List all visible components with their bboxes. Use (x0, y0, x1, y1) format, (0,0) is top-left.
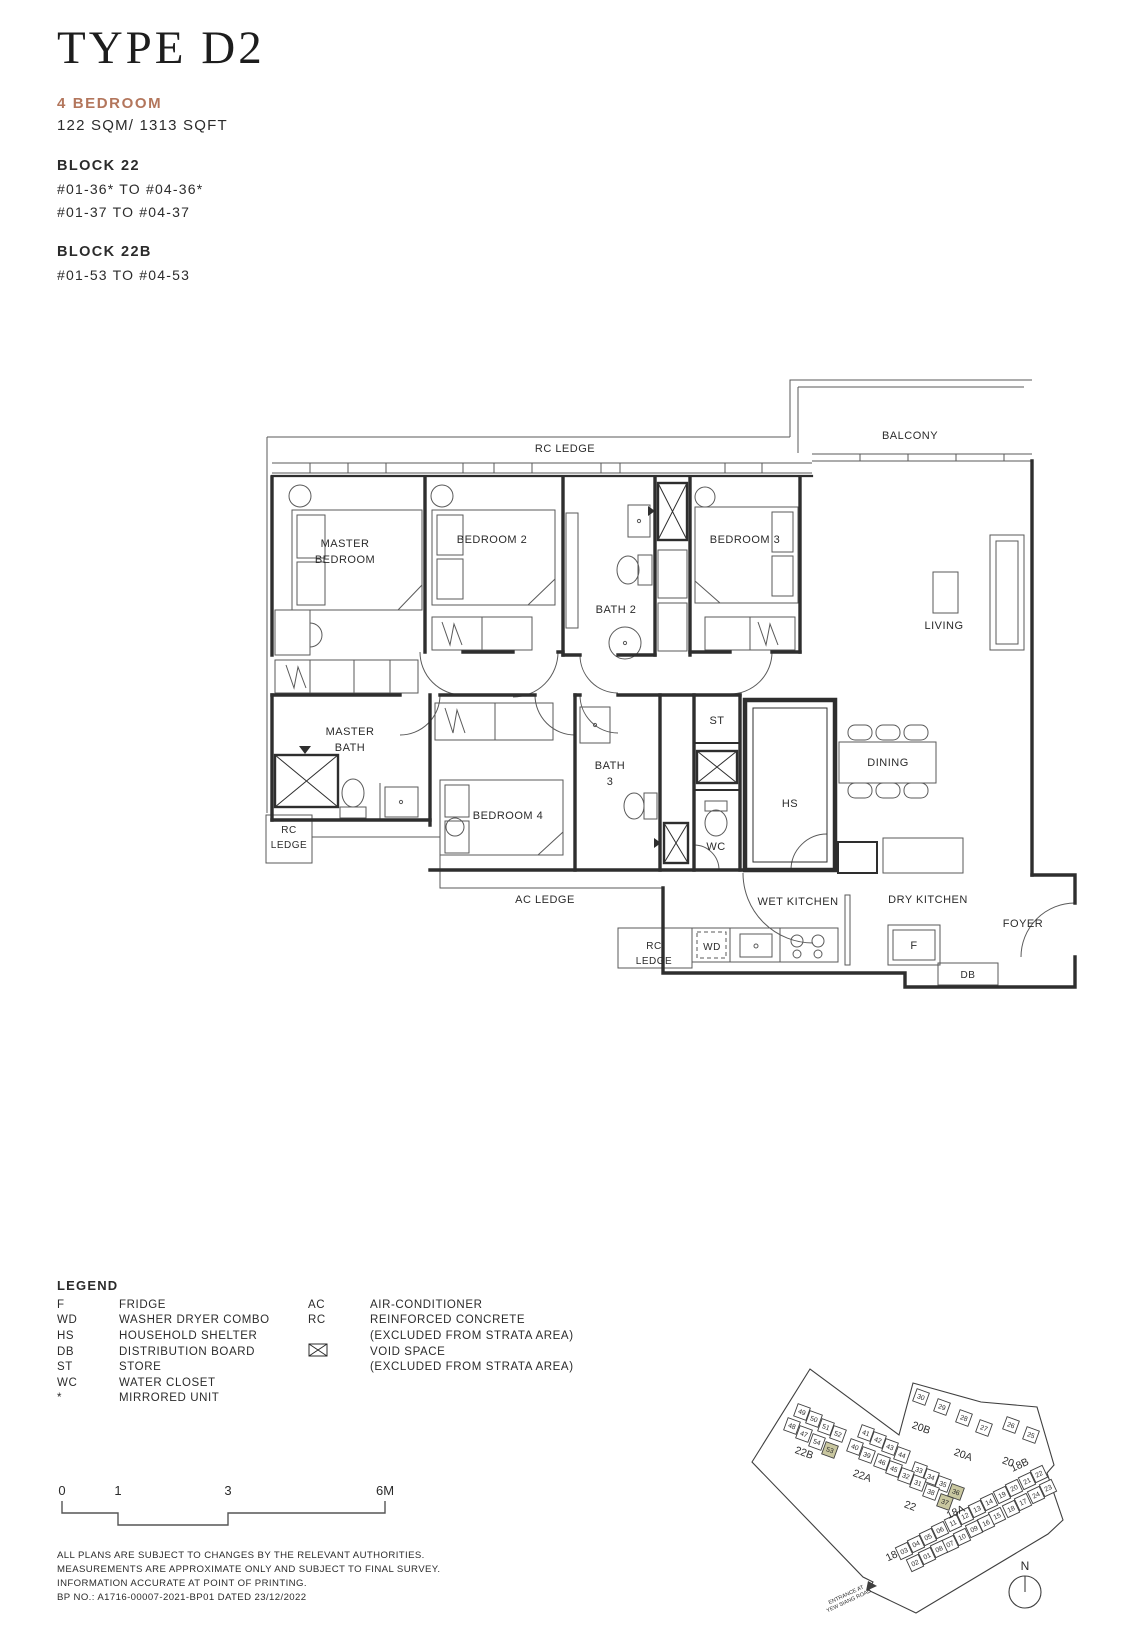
block-units-line: #01-53 TO #04-53 (57, 267, 477, 283)
room-label-wc: WC (706, 841, 725, 853)
room-label-rc-ledge: RC LEDGE (535, 443, 595, 455)
legend-abbr: HS (57, 1330, 119, 1342)
entrance-label: ENTRANCE ATYEW SIANG ROAD (826, 1584, 873, 1614)
ac-ledge-outline (312, 837, 663, 888)
site-unit-54: 54 (809, 1434, 826, 1451)
site-unit-30: 30 (913, 1389, 930, 1406)
room-label-hs: HS (782, 798, 798, 810)
legend-row: *MIRRORED UNIT (57, 1391, 307, 1407)
room-label-wd: WD (703, 942, 721, 953)
legend-label: WATER CLOSET (119, 1377, 307, 1389)
legend-abbr: ST (57, 1361, 119, 1373)
block-name: BLOCK 22B (57, 244, 477, 260)
legend-column-2: ACAIR-CONDITIONERRCREINFORCED CONCRETE(E… (308, 1297, 638, 1375)
legend-label: (EXCLUDED FROM STRATA AREA) (370, 1361, 638, 1373)
bath2-fixtures (566, 505, 652, 659)
block-units-line: #01-37 TO #04-37 (57, 204, 477, 220)
room-label-dry-kitchen: DRY KITCHEN (888, 894, 968, 906)
legend-label: HOUSEHOLD SHELTER (119, 1330, 307, 1342)
legend-row: HSHOUSEHOLD SHELTER (57, 1328, 307, 1344)
balcony-outline (798, 387, 1024, 453)
legend-label: STORE (119, 1361, 307, 1373)
legend-abbr: DB (57, 1346, 119, 1358)
disclaimer: ALL PLANS ARE SUBJECT TO CHANGES BY THE … (57, 1549, 537, 1605)
room-label-master-bedroom: MASTERBEDROOM (315, 538, 375, 566)
legend-row: WDWASHER DRYER COMBO (57, 1313, 307, 1329)
legend-row: DBDISTRIBUTION BOARD (57, 1344, 307, 1360)
site-block-label-20b: 20B (910, 1419, 932, 1437)
site-unit-28: 28 (956, 1410, 973, 1427)
scale-tick-label: 6M (376, 1483, 394, 1498)
site-block-label-22: 22 (902, 1499, 917, 1514)
page-title: TYPE D2 (57, 24, 477, 73)
legend-row: STSTORE (57, 1359, 307, 1375)
site-units-layer: 4950515248475453302928272625414243443334… (784, 1389, 1057, 1572)
legend-abbr: RC (308, 1314, 370, 1326)
room-label-living: LIVING (924, 620, 963, 632)
site-unit-27: 27 (976, 1420, 993, 1437)
site-block-label-22a: 22A (851, 1467, 873, 1485)
disclaimer-line: INFORMATION ACCURATE AT POINT OF PRINTIN… (57, 1577, 537, 1591)
hs-walls (745, 700, 835, 870)
master-bath-fixtures (340, 779, 422, 820)
void-space-icon (308, 1343, 328, 1357)
legend-column-1: FFRIDGEWDWASHER DRYER COMBOHSHOUSEHOLD S… (57, 1297, 307, 1406)
legend-abbr: WC (57, 1377, 119, 1389)
site-unit-25: 25 (1023, 1427, 1040, 1444)
desk (275, 610, 310, 655)
room-label-master-bath: MASTERBATH (326, 726, 375, 754)
room-label-f: F (910, 940, 917, 952)
scale-tick-label: 0 (58, 1483, 65, 1498)
room-label-wet-kitchen: WET KITCHEN (757, 896, 838, 908)
disclaimer-line: BP NO.: A1716-00007-2021-BP01 DATED 23/1… (57, 1591, 537, 1605)
living-table (933, 572, 958, 613)
sofa (990, 535, 1024, 650)
room-label-st: ST (709, 715, 724, 727)
desk-chair (310, 623, 322, 647)
legend-row: WCWATER CLOSET (57, 1375, 307, 1391)
disclaimer-line: ALL PLANS ARE SUBJECT TO CHANGES BY THE … (57, 1549, 537, 1563)
legend-row: (EXCLUDED FROM STRATA AREA) (308, 1328, 638, 1344)
room-label-dining: DINING (867, 757, 909, 769)
legend-title: LEGEND (57, 1278, 118, 1293)
header: TYPE D2 4 BEDROOM 122 SQM/ 1313 SQFT BLO… (57, 24, 477, 283)
room-label-bedroom-3: BEDROOM 3 (710, 534, 781, 546)
legend-abbr (308, 1343, 370, 1360)
legend-abbr: F (57, 1299, 119, 1311)
site-plan-map: 4950515248475453302928272625414243443334… (700, 1290, 1140, 1640)
site-unit-26: 26 (1003, 1417, 1020, 1434)
scale-tick-label: 1 (114, 1483, 121, 1498)
triangle-marker (299, 746, 311, 754)
rc-ledge-left-box (266, 815, 312, 863)
room-label-balcony: BALCONY (882, 430, 938, 442)
room-label-foyer: FOYER (1003, 918, 1043, 930)
block-units-line: #01-36* TO #04-36* (57, 181, 477, 197)
legend-row: RCREINFORCED CONCRETE (308, 1313, 638, 1329)
svg-text:N: N (1021, 1559, 1030, 1573)
room-label-rc-ledge-2: RCLEDGE (271, 825, 307, 851)
room-label-rc-ledge-3: RCLEDGE (636, 941, 672, 967)
room-label-bath-3: BATH3 (595, 760, 626, 788)
room-label-bedroom-2: BEDROOM 2 (457, 534, 528, 546)
legend-row: ACAIR-CONDITIONER (308, 1297, 638, 1313)
legend-abbr: * (57, 1392, 119, 1404)
legend-row: VOID SPACE (308, 1344, 638, 1360)
legend-abbr: WD (57, 1314, 119, 1326)
scale-bar-line (57, 1483, 417, 1529)
legend-label: REINFORCED CONCRETE (370, 1314, 638, 1326)
door-arcs (400, 652, 1075, 957)
bedroom-type-label: 4 BEDROOM (57, 95, 477, 112)
legend-label: FRIDGE (119, 1299, 307, 1311)
room-label-db: DB (961, 970, 976, 981)
floor-plan-drawing: RC LEDGEBALCONYMASTERBEDROOMBEDROOM 2BAT… (250, 355, 1100, 1005)
legend-label: DISTRIBUTION BOARD (119, 1346, 307, 1358)
room-label-bedroom-4: BEDROOM 4 (473, 810, 544, 822)
block-22-group: BLOCK 22 #01-36* TO #04-36* #01-37 TO #0… (57, 158, 477, 220)
area-label: 122 SQM/ 1313 SQFT (57, 117, 477, 134)
legend-row: (EXCLUDED FROM STRATA AREA) (308, 1359, 638, 1375)
site-unit-53: 53 (822, 1442, 839, 1459)
block-name: BLOCK 22 (57, 158, 477, 174)
north-compass-icon: N (1009, 1559, 1041, 1608)
legend-label: VOID SPACE (370, 1346, 638, 1358)
floorplan-page: TYPE D2 4 BEDROOM 122 SQM/ 1313 SQFT BLO… (0, 0, 1147, 1645)
legend-row: FFRIDGE (57, 1297, 307, 1313)
legend-label: WASHER DRYER COMBO (119, 1314, 307, 1326)
room-label-ac-ledge: AC LEDGE (515, 894, 575, 906)
room-label-bath-2: BATH 2 (596, 604, 637, 616)
legend-label: AIR-CONDITIONER (370, 1299, 638, 1311)
site-unit-29: 29 (934, 1399, 951, 1416)
legend-abbr: AC (308, 1299, 370, 1311)
disclaimer-line: MEASUREMENTS ARE APPROXIMATE ONLY AND SU… (57, 1563, 537, 1577)
wc-fixtures (705, 801, 727, 836)
scale-bar: 0 1 3 6M (57, 1483, 417, 1529)
sink (740, 934, 772, 957)
legend-label: MIRRORED UNIT (119, 1392, 307, 1404)
legend-label: (EXCLUDED FROM STRATA AREA) (370, 1330, 638, 1342)
block-22b-group: BLOCK 22B #01-53 TO #04-53 (57, 244, 477, 283)
scale-tick-label: 3 (224, 1483, 231, 1498)
site-block-label-20a: 20A (952, 1446, 974, 1464)
